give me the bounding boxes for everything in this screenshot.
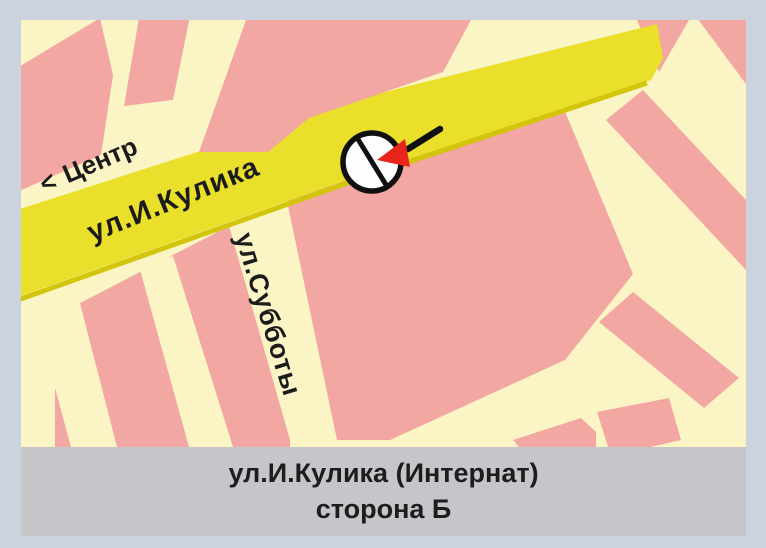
stop-name-text: ул.И.Кулика (Интернат) bbox=[21, 458, 746, 489]
stop-side-text: сторона Б bbox=[21, 494, 746, 525]
map-drawing bbox=[21, 20, 746, 447]
city-block-upper-small bbox=[124, 20, 190, 106]
city-block-right-lower-band bbox=[599, 292, 739, 408]
city-block-bottom-wedge bbox=[513, 418, 596, 447]
stop-caption: ул.И.Кулика (Интернат) сторона Б bbox=[21, 447, 746, 536]
map-card-frame: <Центр ул.И.Кулика ул.Субботы ул.И.Кулик… bbox=[0, 0, 766, 548]
stop-location-map: <Центр ул.И.Кулика ул.Субботы bbox=[21, 20, 746, 447]
city-block-upper-left bbox=[21, 20, 113, 192]
city-block-bottom-square bbox=[597, 398, 681, 447]
city-block-top-right-triangle bbox=[697, 20, 746, 84]
city-block-right-band bbox=[606, 90, 746, 270]
